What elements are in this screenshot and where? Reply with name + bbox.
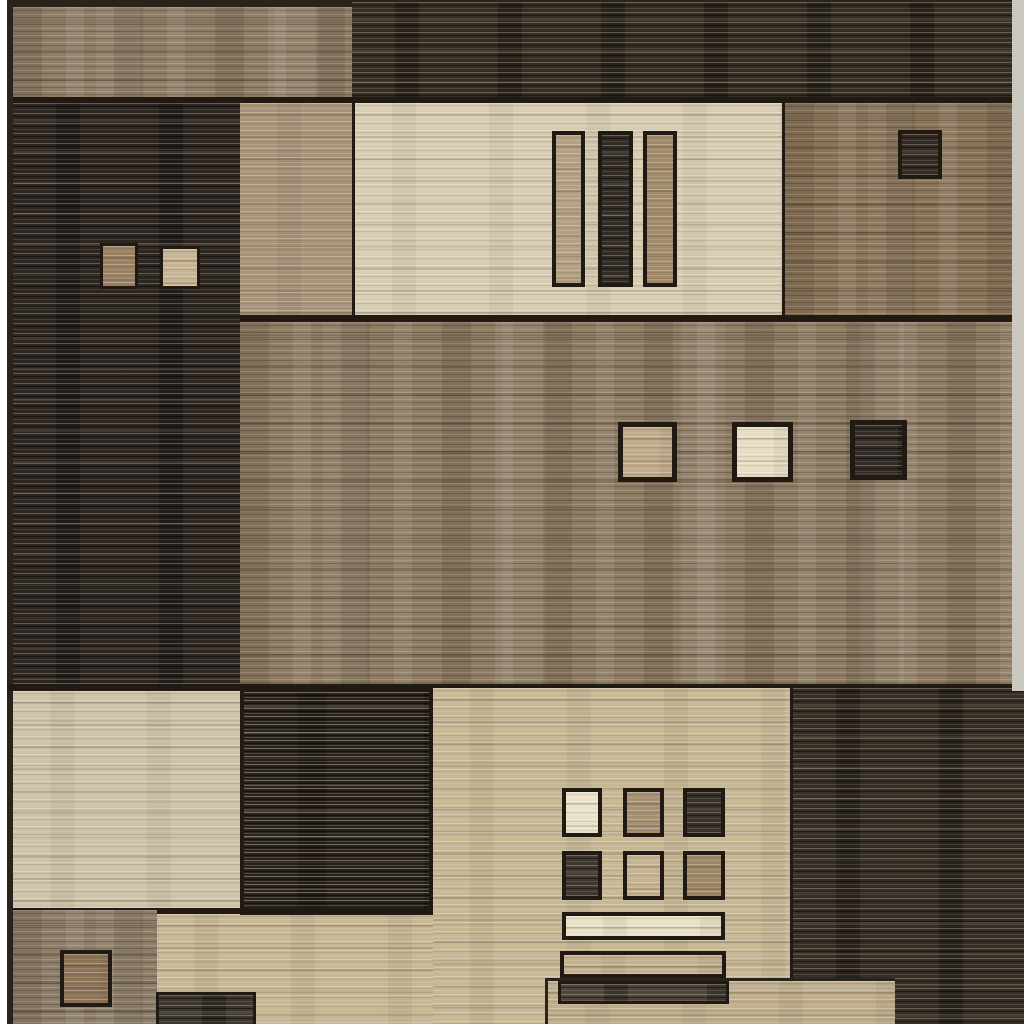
left-dark-block <box>13 103 240 684</box>
top-right-brown-block <box>782 103 1012 315</box>
grid-square-r2c3-brown <box>683 851 725 900</box>
cream-field-vertical-bar-dark <box>598 131 633 287</box>
stripe-bar-tan <box>560 951 726 978</box>
grid-square-r2c1-dark <box>562 851 602 900</box>
bottom-right-dark-block <box>790 688 1024 1024</box>
top-dark-band <box>352 2 1012 97</box>
middle-square-dark <box>850 420 907 480</box>
bottom-left-cream-block <box>13 691 240 908</box>
taupe-block-brown-square <box>60 950 112 1007</box>
tan-column-block <box>240 103 352 315</box>
left-block-square-tan <box>100 243 138 289</box>
cream-field-vertical-bar-tan <box>552 131 585 287</box>
top-right-small-dark-square <box>898 130 942 179</box>
cream-field-vertical-bar-brown <box>643 131 677 287</box>
grid-square-r2c2-beige <box>623 851 664 900</box>
top-left-taupe-block <box>13 7 352 97</box>
rug-photo <box>0 0 1024 1024</box>
row-divider-line-2 <box>240 315 1012 322</box>
grid-square-r1c3-dark <box>683 788 725 837</box>
bottom-dark-bar <box>156 992 256 1024</box>
stripe-bar-cream <box>562 912 725 940</box>
stripe-bar-dark <box>558 981 729 1004</box>
right-edge-binding-strip <box>1012 0 1024 691</box>
middle-square-tan <box>618 422 677 482</box>
grid-square-r1c1-cream <box>562 788 602 837</box>
middle-square-cream <box>732 422 793 482</box>
middle-brown-field <box>240 322 1012 684</box>
left-block-square-beige <box>160 246 200 289</box>
mid-dark-block <box>240 688 433 915</box>
grid-square-r1c2-tan <box>623 788 664 837</box>
